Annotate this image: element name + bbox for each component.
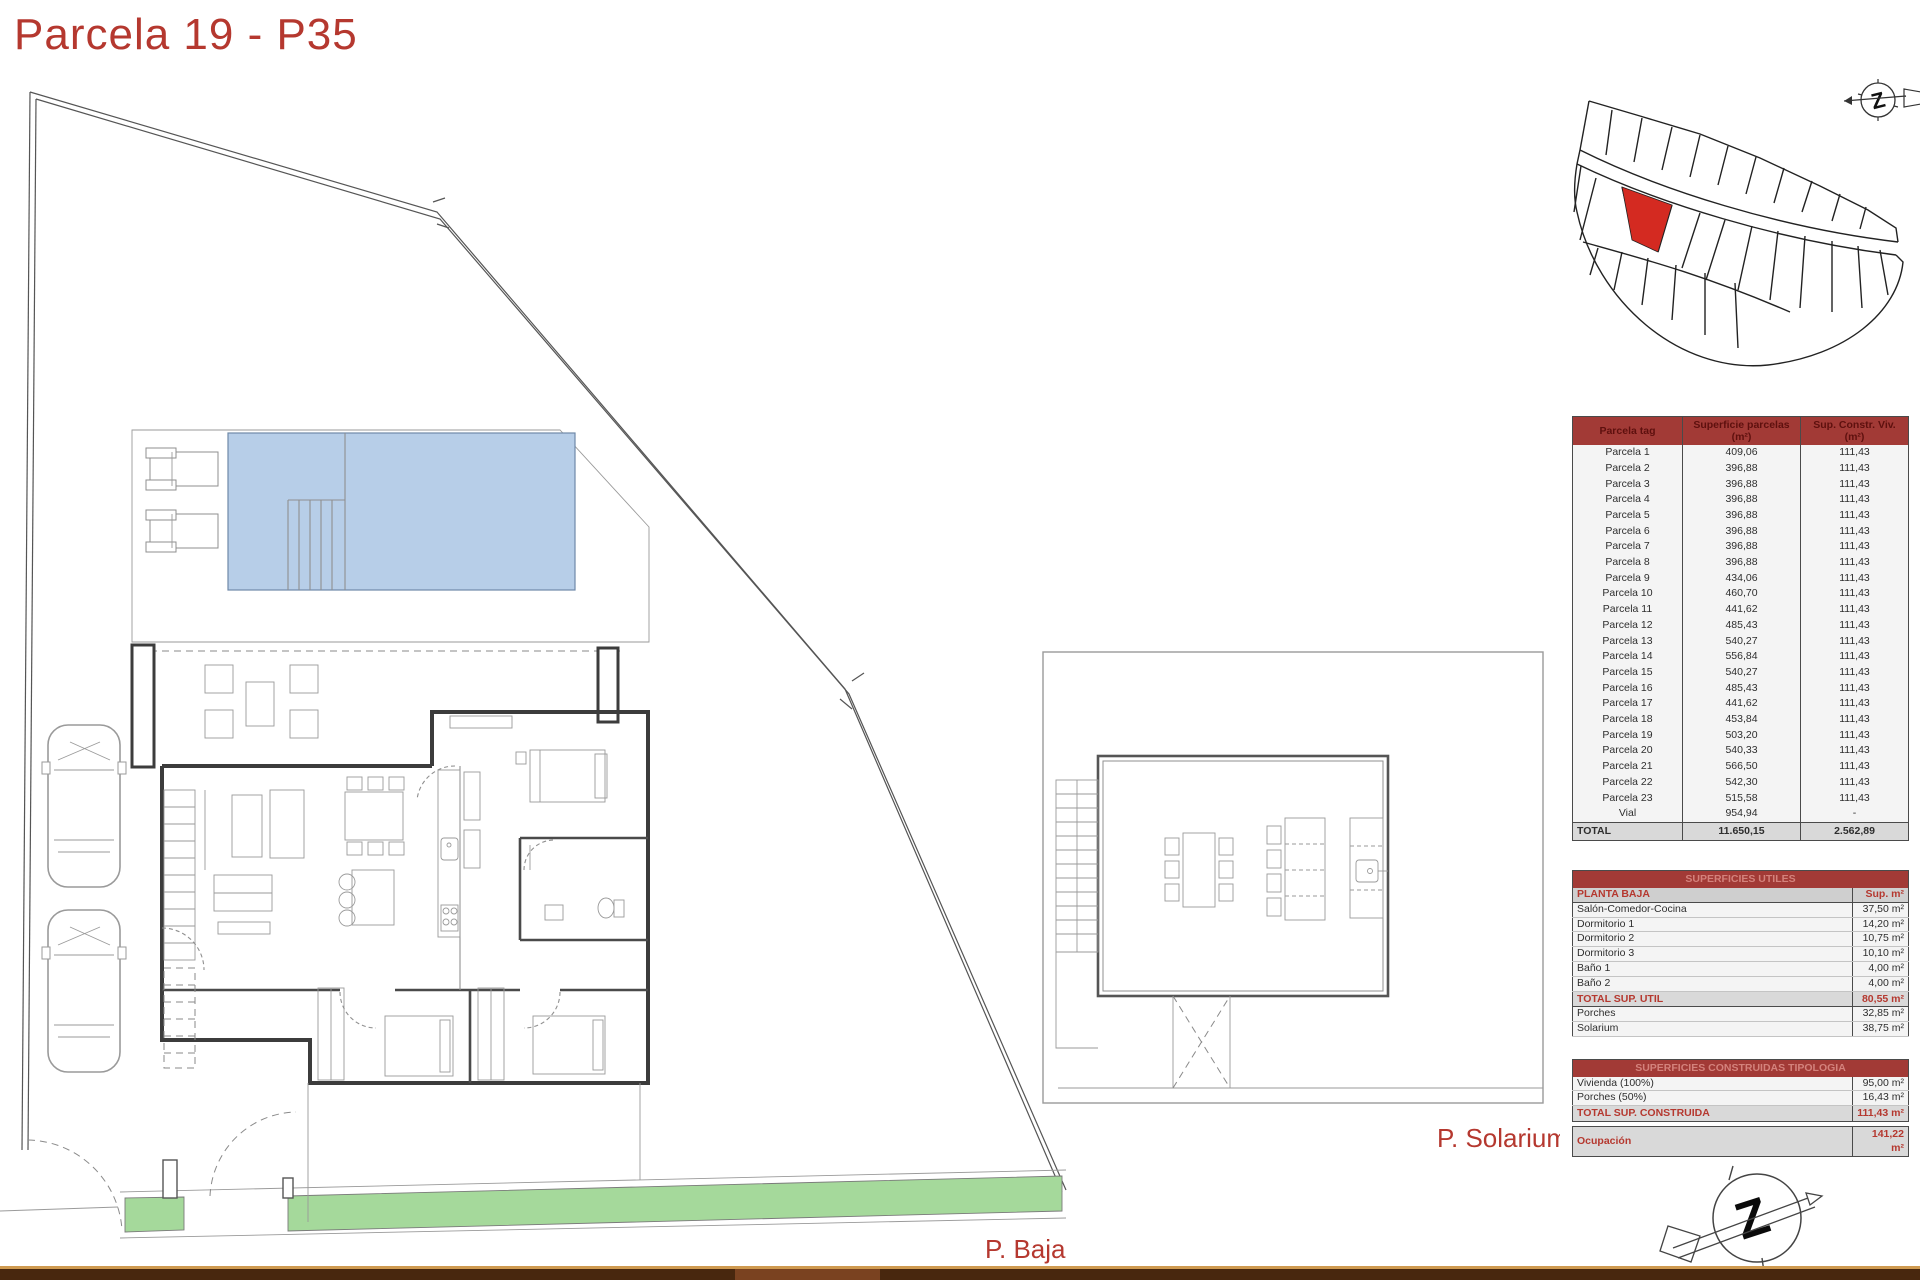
table-row: Parcela 16485,43111,43 [1573,681,1909,697]
table-row: Porches (50%)16,43 m² [1573,1091,1909,1106]
table-row: Parcela 14556,84111,43 [1573,649,1909,665]
table-row: Dormitorio 114,20 m² [1573,917,1909,932]
table-header-row: Parcela tag Superficie parcelas (m²) Sup… [1573,417,1909,446]
table-row: Porches32,85 m² [1573,1007,1909,1022]
table-row: Parcela 6396,88111,43 [1573,524,1909,540]
table-row: Salón-Comedor-Cocina37,50 m² [1573,902,1909,917]
pool-terrace [132,430,649,642]
bedroom-3 [478,988,605,1080]
solarium-plan [1043,652,1543,1103]
table-row: Baño 24,00 m² [1573,976,1909,991]
col-header-superficie: Superficie parcelas (m²) [1683,417,1801,446]
solarium-kitchenette [1350,818,1388,918]
col-header-construida: Sup. Constr. Viv. (m²) [1801,417,1909,446]
table-row: Parcela 8396,88111,43 [1573,555,1909,571]
parcel-areas-table: Parcela tag Superficie parcelas (m²) Sup… [1572,416,1909,841]
table-row: Parcela 10460,70111,43 [1573,586,1909,602]
table-row: Parcela 5396,88111,43 [1573,508,1909,524]
table-row: Parcela 18453,84111,43 [1573,712,1909,728]
bottom-bar-brown [0,1269,1920,1280]
sun-lounger [146,510,218,552]
table-row: Parcela 15540,27111,43 [1573,665,1909,681]
subheader-row: PLANTA BAJA Sup. m² [1573,888,1909,902]
table-row: Parcela 12485,43111,43 [1573,618,1909,634]
staircase [164,790,195,1068]
table-row: Parcela 17441,62111,43 [1573,696,1909,712]
total-construida-row: TOTAL SUP. CONSTRUIDA 111,43 m² [1573,1106,1909,1122]
useful-areas-title: SUPERFICIES UTILES [1573,871,1909,889]
grass-strip [120,1170,1066,1238]
table-row: Parcela 9434,06111,43 [1573,571,1909,587]
total-sup-util-row: TOTAL SUP. UTIL 80,55 m² [1573,991,1909,1007]
car [42,910,126,1072]
table-row: Parcela 1409,06111,43 [1573,445,1909,461]
north-compass-small-icon: Z [1844,79,1920,121]
bedroom-1 [450,716,607,802]
table-row: Parcela 13540,27111,43 [1573,634,1909,650]
roof-shaft [1058,996,1543,1088]
kitchen-sink [441,838,458,860]
table-row: Parcela 2396,88111,43 [1573,461,1909,477]
solarium-lounge [1267,818,1325,920]
built-areas-table: SUPERFICIES CONSTRUIDAS TIPOLOGIA Vivien… [1572,1059,1909,1122]
table-row: Parcela 11441,62111,43 [1573,602,1909,618]
occupation-table: Ocupación 141,22 m² [1572,1126,1909,1157]
bedroom-2 [318,988,453,1080]
data-tables: Parcela tag Superficie parcelas (m²) Sup… [1572,416,1909,1157]
col-header-parcela: Parcela tag [1573,417,1683,446]
living-room-furniture [205,790,304,934]
location-diagram: Z [1555,60,1920,380]
door-arcs [162,766,560,1028]
svg-text:Z: Z [1869,87,1888,115]
solarium-table [1165,833,1233,907]
table-row: Parcela 21566,50111,43 [1573,759,1909,775]
label-planta-baja: P. Baja [985,1234,1066,1264]
north-compass-large: Z [1650,1150,1870,1278]
bathroom [524,840,624,920]
sun-lounger [146,448,218,490]
house-plan [132,645,648,1222]
table-row: Baño 14,00 m² [1573,961,1909,976]
total-row: TOTAL 11.650,15 2.562,89 [1573,823,1909,841]
table-row: Vial954,94- [1573,806,1909,822]
car [42,725,126,887]
table-row: Parcela 4396,88111,43 [1573,492,1909,508]
table-row: Parcela 22542,30111,43 [1573,775,1909,791]
site-plan: P. Baja P. Solarium [0,0,1560,1280]
table-row: Parcela 20540,33111,43 [1573,743,1909,759]
label-solarium: P. Solarium [1437,1123,1560,1153]
drawing-sheet: Parcela 19 - P35 [0,0,1920,1280]
table-row: Parcela 7396,88111,43 [1573,539,1909,555]
table-row: Solarium38,75 m² [1573,1021,1909,1036]
table-row: Parcela 23515,58111,43 [1573,791,1909,807]
outdoor-dining-set [205,665,318,738]
bottom-bar [0,1266,1920,1280]
lounge-sofa [339,870,394,926]
subheader-sup: Sup. m² [1852,888,1908,902]
table-row: Parcela 19503,20111,43 [1573,728,1909,744]
bottom-bar-mid-segment [735,1269,880,1280]
solarium-stairs [1056,780,1098,1048]
useful-areas-table: SUPERFICIES UTILES PLANTA BAJA Sup. m² S… [1572,870,1909,1037]
table-row: Parcela 3396,88111,43 [1573,477,1909,493]
table-row: Dormitorio 310,10 m² [1573,947,1909,962]
table-row: Dormitorio 210,75 m² [1573,932,1909,947]
table-row: Vivienda (100%)95,00 m² [1573,1077,1909,1091]
swimming-pool [228,433,575,590]
kitchen [438,770,480,937]
highlighted-parcel [1622,187,1672,252]
built-areas-title: SUPERFICIES CONSTRUIDAS TIPOLOGIA [1573,1059,1909,1077]
subheader-planta-baja: PLANTA BAJA [1573,888,1853,902]
ocupacion-row: Ocupación 141,22 m² [1573,1126,1909,1156]
parcel-fan [1574,101,1903,366]
dining-table [345,777,404,855]
